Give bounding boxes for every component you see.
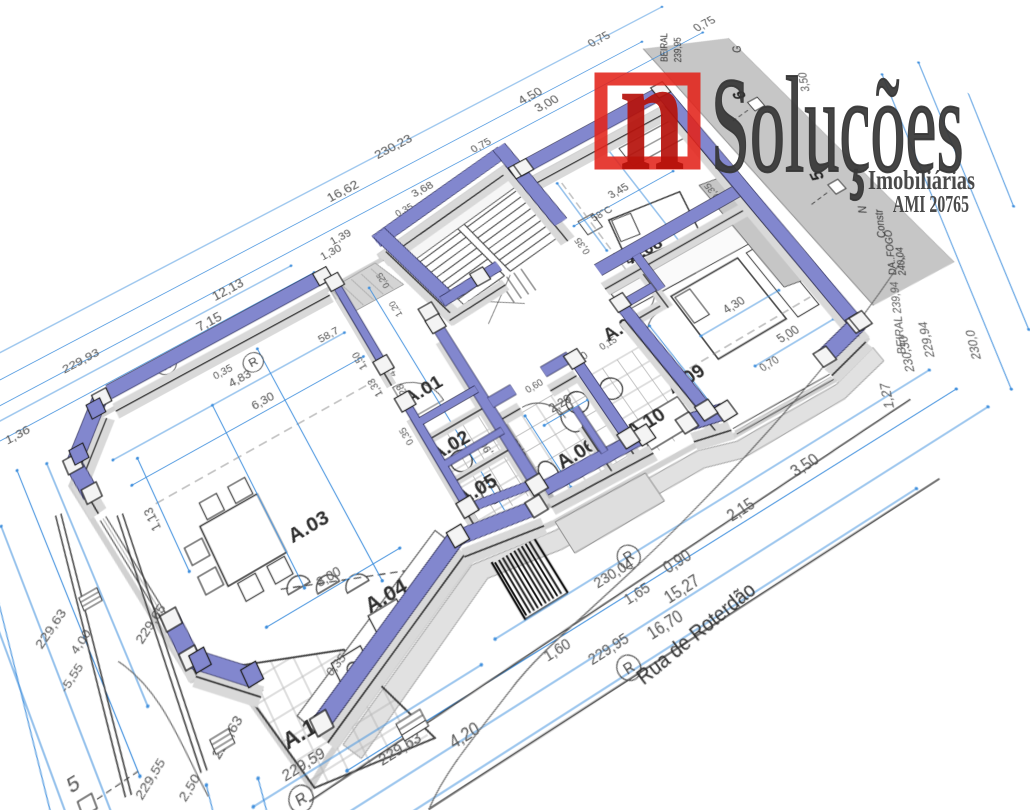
svg-text:n: n [619,22,685,204]
svg-text:AMI 20765: AMI 20765 [893,192,969,218]
